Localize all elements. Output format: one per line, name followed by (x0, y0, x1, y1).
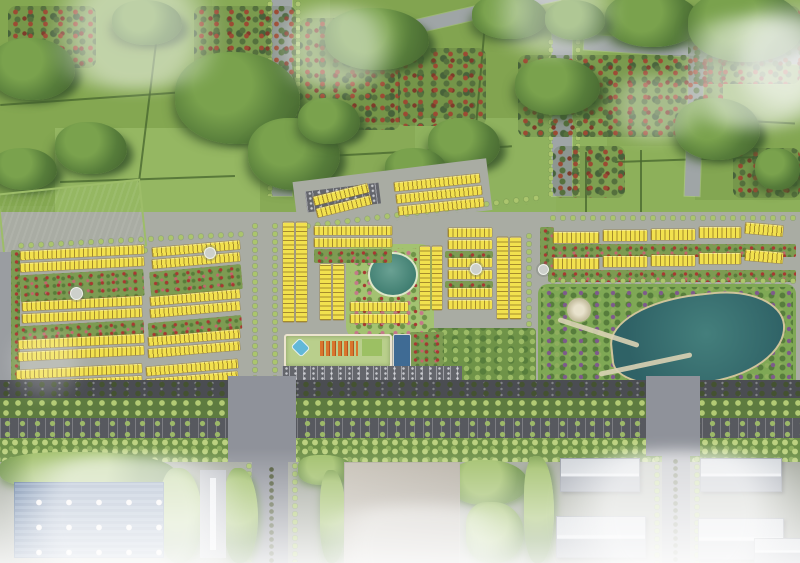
scene-layer (0, 0, 800, 563)
aerial-master-plan-rendering: Aerial 3D rendering of a residential mas… (0, 0, 800, 563)
townhouse-row (699, 253, 741, 264)
tree-cluster (55, 122, 127, 174)
fog-cloud (255, 5, 415, 90)
tree-line (548, 214, 798, 223)
cabana-row (320, 341, 358, 356)
townhouse-row (651, 255, 695, 266)
townhouse-row (314, 238, 392, 247)
roundabout (470, 263, 482, 275)
flowering-tree-garden (445, 281, 493, 288)
fog-cloud (590, 75, 720, 140)
flowering-tree-garden (445, 251, 493, 258)
townhouse-row (603, 230, 647, 241)
townhouse-row (350, 314, 408, 323)
townhouse-row (420, 246, 430, 310)
townhouse-row (448, 228, 492, 237)
roundabout (538, 264, 549, 275)
townhouse-row (296, 222, 307, 322)
townhouse-row (448, 240, 492, 249)
townhouse-row (448, 288, 492, 297)
tree-line (548, 277, 796, 285)
tree-cluster (298, 98, 360, 144)
townhouse-row (510, 237, 521, 319)
townhouse-row (314, 226, 392, 235)
fog-cloud (0, 325, 90, 400)
townhouse-row (333, 264, 344, 320)
fountain-plaza (566, 297, 592, 323)
townhouse-row (320, 264, 331, 320)
townhouse-row (553, 258, 599, 269)
tree-cluster (515, 58, 600, 115)
townhouse-row (603, 256, 647, 267)
intersection-plaza (646, 376, 700, 456)
roundabout (204, 247, 216, 259)
townhouse-row (448, 300, 492, 309)
townhouse-row (699, 227, 741, 238)
tree-cluster (755, 148, 800, 190)
townhouse-row (497, 237, 508, 319)
townhouse-row (553, 232, 599, 243)
flowering-tree-garden (314, 249, 392, 263)
townhouse-row (432, 246, 442, 310)
townhouse-row (350, 302, 408, 311)
tree-line (270, 222, 278, 398)
deck-lawn (362, 339, 382, 356)
townhouse-row (651, 229, 695, 240)
field-hedge-line (640, 150, 642, 216)
village-cluster (553, 146, 625, 198)
tree-line (250, 222, 258, 398)
townhouse-row (283, 222, 294, 322)
roundabout (70, 287, 83, 300)
